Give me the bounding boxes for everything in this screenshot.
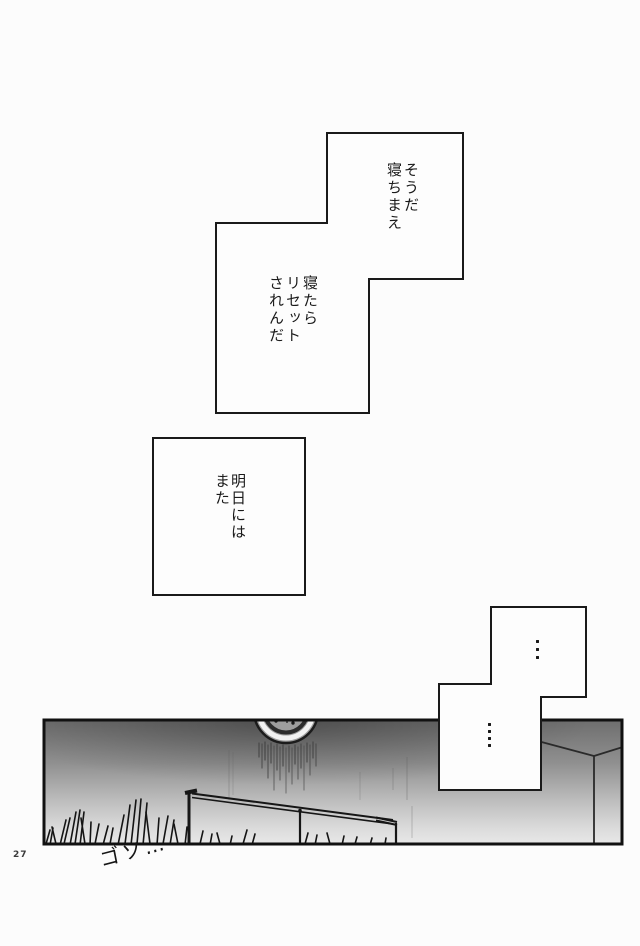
dialogue-bubble-top-text: そうだ 寝ちまえ <box>385 162 419 232</box>
page-artwork <box>0 0 640 946</box>
wall-clock-drawing <box>254 679 318 743</box>
ellipsis-dot <box>488 723 491 726</box>
ellipsis-dot <box>488 730 491 733</box>
dialogue-bubble-mid-text: 寝たら リセット されんだ <box>267 275 318 345</box>
speech-bubble-top <box>216 133 463 413</box>
ellipsis-dots-lower <box>488 723 491 747</box>
manga-page: そうだ 寝ちまえ 寝たら リセット されんだ 明日には また ゴソ… 27 <box>0 0 640 946</box>
ellipsis-dot <box>488 737 491 740</box>
ellipsis-dot <box>536 640 539 643</box>
page-number: 27 <box>13 850 28 860</box>
ellipsis-dot <box>536 656 539 659</box>
ellipsis-dots-upper <box>536 640 539 659</box>
ellipsis-dot <box>488 744 491 747</box>
ellipsis-dot <box>536 648 539 651</box>
dialogue-square-panel-text: 明日には また <box>214 473 246 541</box>
